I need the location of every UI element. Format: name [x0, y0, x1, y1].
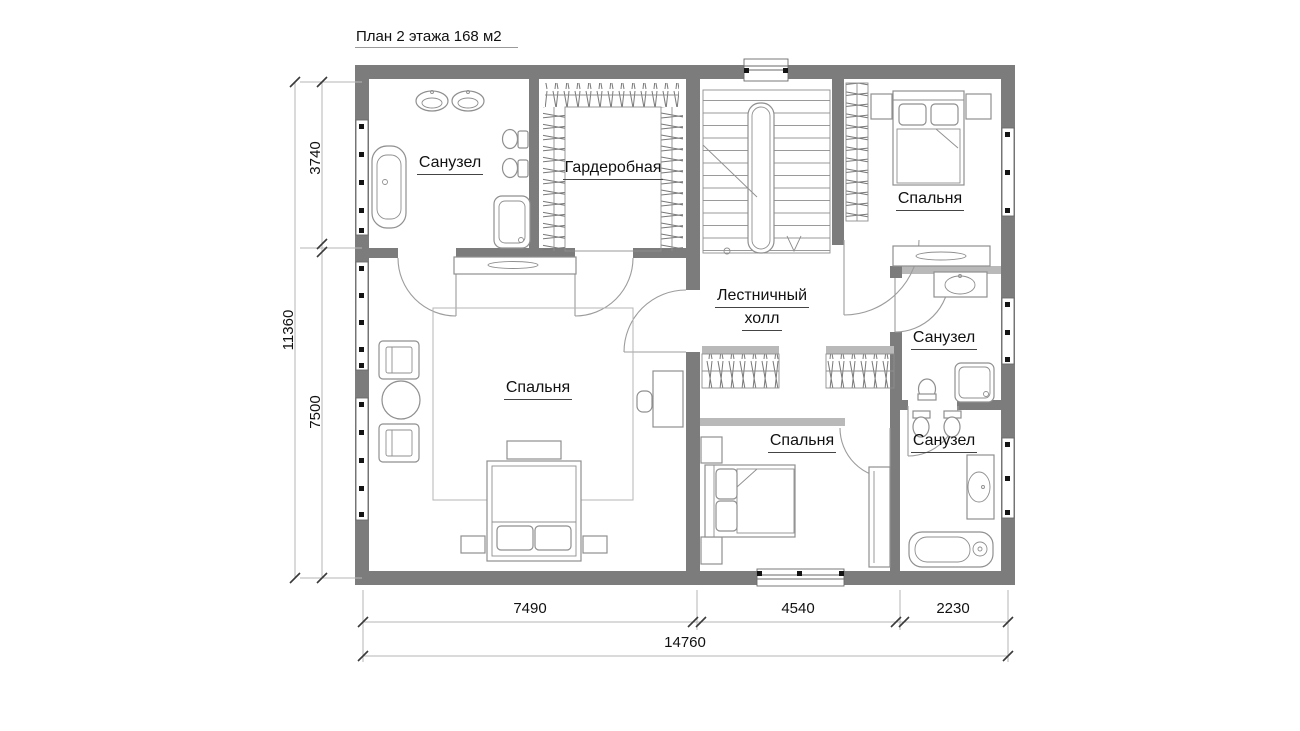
dim-horizontal-left: 7490 [490, 599, 570, 619]
floor-plan-page: План 2 этажа 168 м2 Санузел Гардеробная … [0, 0, 1300, 731]
nightstand [701, 537, 722, 564]
dim-vertical-top: 3740 [306, 118, 326, 198]
room-label-bedroom-top-right: Спальня [860, 182, 1000, 216]
room-label-bedroom-bottom: Спальня [732, 424, 872, 458]
plan-title: План 2 этажа 168 м2 [355, 28, 518, 45]
floor-plan-drawing [0, 0, 1300, 731]
bedroom-right-furniture [871, 91, 991, 266]
room-label-bathroom-middle: Санузел [874, 321, 1014, 355]
nightstand [966, 94, 991, 119]
desk-chair [637, 391, 652, 412]
room-label-bedroom-master: Спальня [468, 371, 608, 405]
room-label-bathroom-bottom: Санузел [874, 424, 1014, 458]
double-bed [893, 91, 964, 185]
nightstand [701, 437, 722, 463]
shower-cabin [494, 196, 530, 248]
tall-cabinet [869, 467, 890, 567]
room-label-stair-hall: Лестничныйхолл [692, 284, 832, 332]
bathtub [909, 532, 993, 567]
master-bedroom-furniture [379, 257, 683, 561]
dim-vertical-total: 11360 [279, 290, 299, 370]
dresser [454, 257, 576, 274]
staircase [703, 90, 830, 254]
toilet [918, 379, 936, 400]
armchair [379, 424, 419, 462]
shower-cabin [955, 363, 994, 402]
console [893, 246, 990, 266]
dim-horizontal-total: 14760 [645, 633, 725, 653]
room-label-dressing-room: Гардеробная [543, 151, 683, 185]
dim-vertical-bottom: 7500 [306, 372, 326, 452]
armchair [379, 341, 419, 379]
bench [507, 441, 561, 459]
desk [653, 371, 683, 427]
double-bed [705, 465, 795, 537]
hall-wardrobes [702, 346, 894, 388]
nightstand [583, 536, 607, 553]
double-sinks [416, 91, 484, 112]
room-label-bathroom-master: Санузел [380, 146, 520, 180]
nightstand [461, 536, 485, 553]
dim-horizontal-middle: 4540 [758, 599, 838, 619]
dim-horizontal-right: 2230 [913, 599, 993, 619]
double-bed [487, 461, 581, 561]
round-table [382, 381, 420, 419]
nightstand [871, 94, 892, 119]
